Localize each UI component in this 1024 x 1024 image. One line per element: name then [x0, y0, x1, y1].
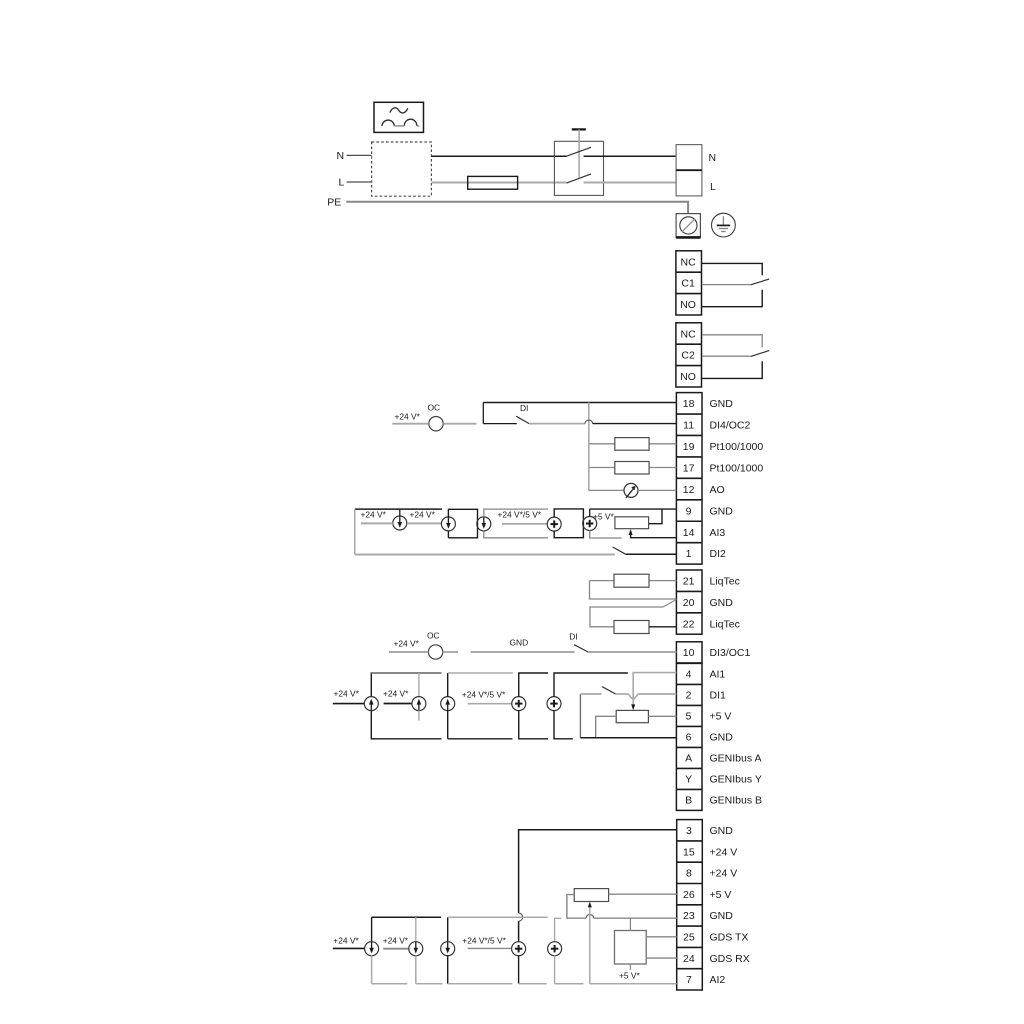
svg-text:GDS RX: GDS RX — [710, 953, 750, 965]
svg-text:+24 V*: +24 V* — [334, 688, 360, 698]
svg-text:11: 11 — [683, 420, 694, 432]
svg-text:N: N — [709, 152, 717, 164]
svg-text:4: 4 — [686, 669, 692, 681]
svg-text:19: 19 — [683, 441, 695, 453]
svg-text:+24 V*: +24 V* — [361, 509, 387, 519]
svg-text:AO: AO — [710, 484, 725, 496]
svg-text:LiqTec: LiqTec — [710, 576, 740, 588]
svg-text:LiqTec: LiqTec — [710, 618, 740, 630]
svg-text:+24 V*: +24 V* — [394, 639, 420, 649]
svg-text:+5 V: +5 V — [710, 711, 732, 723]
svg-text:A: A — [685, 753, 692, 765]
svg-text:OC: OC — [427, 631, 440, 641]
svg-text:22: 22 — [683, 618, 695, 630]
svg-text:C1: C1 — [681, 278, 695, 290]
svg-text:+24 V: +24 V — [710, 868, 738, 880]
svg-text:17: 17 — [683, 462, 695, 474]
svg-text:B: B — [685, 795, 692, 807]
svg-text:GENIbus B: GENIbus B — [710, 795, 763, 807]
svg-text:24: 24 — [683, 953, 695, 965]
svg-text:DI4/OC2: DI4/OC2 — [710, 420, 751, 432]
svg-text:+5 V*: +5 V* — [619, 970, 640, 980]
svg-text:GDS TX: GDS TX — [710, 932, 749, 944]
svg-text:GND: GND — [710, 825, 734, 837]
svg-text:20: 20 — [683, 597, 695, 609]
svg-text:Pt100/1000: Pt100/1000 — [710, 441, 764, 453]
svg-text:DI: DI — [569, 631, 577, 641]
svg-text:9: 9 — [686, 505, 692, 517]
svg-text:5: 5 — [686, 711, 692, 723]
svg-text:Pt100/1000: Pt100/1000 — [710, 462, 764, 474]
svg-text:NC: NC — [681, 328, 697, 340]
svg-text:DI2: DI2 — [710, 548, 727, 560]
svg-text:+24 V*: +24 V* — [383, 935, 409, 945]
svg-text:21: 21 — [683, 576, 695, 588]
svg-text:+5 V: +5 V — [710, 889, 732, 901]
svg-text:+24 V*: +24 V* — [383, 688, 409, 698]
svg-text:+24 V*: +24 V* — [395, 411, 421, 421]
svg-text:3: 3 — [686, 825, 692, 837]
svg-text:GND: GND — [710, 505, 734, 517]
svg-text:+24 V*: +24 V* — [410, 509, 436, 519]
svg-text:6: 6 — [686, 732, 692, 744]
svg-text:GND: GND — [710, 732, 734, 744]
svg-text:GENIbus Y: GENIbus Y — [710, 774, 762, 786]
svg-text:NO: NO — [680, 299, 696, 311]
svg-text:GND: GND — [710, 597, 734, 609]
svg-text:+24 V*: +24 V* — [333, 935, 359, 945]
svg-text:DI1: DI1 — [710, 690, 727, 702]
svg-text:L: L — [710, 181, 716, 193]
svg-text:18: 18 — [683, 398, 695, 410]
svg-text:10: 10 — [683, 647, 695, 659]
svg-text:+24 V: +24 V — [710, 846, 738, 858]
svg-text:2: 2 — [686, 690, 692, 702]
svg-text:GND: GND — [710, 398, 734, 410]
svg-text:7: 7 — [686, 974, 692, 986]
svg-text:15: 15 — [683, 846, 695, 858]
svg-text:23: 23 — [683, 910, 695, 922]
svg-text:AI1: AI1 — [710, 669, 726, 681]
svg-text:OC: OC — [428, 402, 441, 412]
svg-text:GND: GND — [710, 910, 734, 922]
svg-text:25: 25 — [683, 932, 695, 944]
svg-text:PE: PE — [327, 196, 341, 208]
svg-text:AI3: AI3 — [710, 527, 726, 539]
svg-text:NC: NC — [681, 256, 697, 268]
svg-text:+24 V*/5 V*: +24 V*/5 V* — [498, 509, 542, 519]
svg-text:GND: GND — [510, 638, 529, 648]
svg-text:+24 V*/5 V*: +24 V*/5 V* — [462, 689, 506, 699]
svg-text:14: 14 — [683, 527, 695, 539]
svg-text:8: 8 — [686, 868, 692, 880]
svg-text:NO: NO — [680, 371, 696, 383]
svg-text:12: 12 — [683, 484, 695, 496]
svg-text:DI3/OC1: DI3/OC1 — [710, 647, 751, 659]
svg-text:AI2: AI2 — [710, 974, 726, 986]
svg-text:C2: C2 — [681, 350, 695, 362]
svg-text:GENIbus A: GENIbus A — [710, 753, 762, 765]
svg-text:Y: Y — [685, 774, 692, 786]
svg-text:L: L — [339, 176, 345, 188]
svg-text:+24 V*/5 V*: +24 V*/5 V* — [462, 936, 506, 946]
svg-text:1: 1 — [686, 548, 692, 560]
svg-text:DI: DI — [520, 403, 528, 413]
svg-text:26: 26 — [683, 889, 695, 901]
svg-text:N: N — [337, 150, 345, 162]
